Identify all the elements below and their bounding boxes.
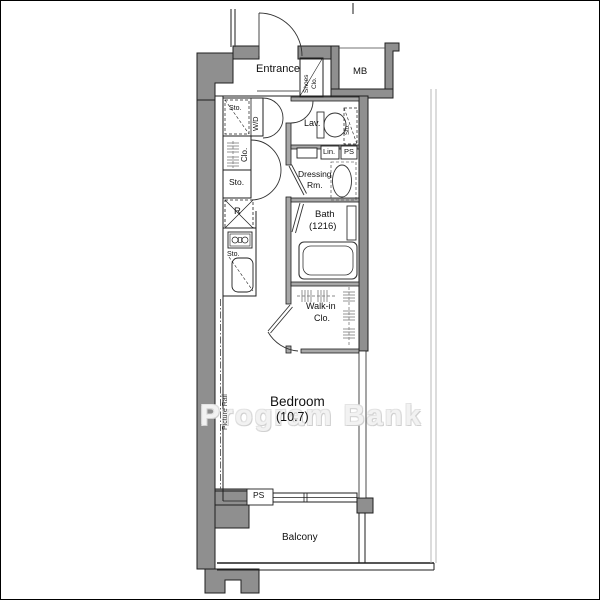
label-washer-dryer: W/D (252, 116, 260, 131)
fixtures (299, 112, 357, 279)
kitchen (223, 228, 256, 296)
closet-hanger-icon (227, 141, 239, 168)
floor-plan-canvas: Program Bank Entrance Shoes Clo. MB Sto.… (0, 0, 600, 600)
label-laundry-storage: Sto. (229, 105, 241, 112)
room-label-closet: Clo. (241, 148, 249, 162)
wall-lav-top (291, 97, 359, 101)
washbasin-counter (331, 162, 356, 200)
room-label-walkin-2: Clo. (314, 314, 330, 323)
label-picture-rail: Picture Rail (222, 394, 229, 430)
wall-hall-seg2 (286, 197, 291, 304)
wall-top-left-block (197, 53, 233, 101)
bathtub-icon (299, 242, 357, 279)
room-label-dressing-1: Dressing (298, 170, 332, 179)
wall-right-bottom-block (357, 498, 373, 513)
bath-door-leaf (292, 203, 304, 233)
room-label-bedroom-2: (10.7) (276, 411, 309, 424)
room-label-meter-box: MB (353, 67, 367, 77)
room-label-entrance: Entrance (256, 64, 300, 76)
wall-bottom-window-side (215, 491, 249, 505)
stove-icon (228, 232, 252, 248)
room-label-bath-1: Bath (315, 210, 335, 220)
wall-bath-wic (291, 282, 359, 286)
wic-hanger-right-icon (343, 287, 355, 345)
washbasin-icon (333, 165, 352, 197)
room-label-lavatory: Lav. (304, 119, 320, 128)
wall-wic-bottom (301, 349, 359, 353)
bath-counter (347, 206, 356, 240)
label-pipe-space-upper: PS (344, 148, 354, 156)
room-label-balcony: Balcony (282, 533, 318, 544)
room-label-bath-2: (1216) (309, 222, 336, 232)
balcony-structure (217, 513, 434, 570)
laundry-double-door-arcs (263, 98, 283, 138)
room-label-shoes-closet-2: Clo. (312, 77, 319, 89)
wall-mb-right (385, 43, 399, 96)
lav-step-box (297, 148, 317, 158)
wall-top-b (298, 46, 335, 59)
entrance-door-arc (259, 13, 302, 56)
floorplan-drawing (1, 1, 600, 600)
label-refrigerator-space: R (234, 207, 241, 217)
room-label-walkin-1: Walk-in (306, 302, 336, 311)
room-label-storage-left: Sto. (229, 178, 244, 187)
toilet-icon (324, 113, 346, 137)
room-label-dressing-2: Rm. (307, 181, 323, 190)
wall-hall-seg1 (286, 123, 291, 165)
survey-ticks (231, 3, 385, 48)
outer-walls (197, 43, 399, 593)
closet-double-door-arcs (251, 140, 281, 200)
wic-door-arc (268, 305, 298, 351)
label-kitchen-storage: Sto. (227, 251, 239, 258)
wall-right (359, 96, 368, 351)
room-label-shoes-closet-1: Shoes (304, 75, 311, 93)
label-lav-corner-storage: Sto. (345, 124, 351, 135)
wall-foot (205, 569, 259, 593)
label-linen: Lin. (323, 148, 335, 156)
neighbor-boundary-lines (431, 89, 436, 563)
label-pipe-space-lower: PS (253, 491, 264, 500)
room-label-bedroom-1: Bedroom (270, 395, 325, 409)
wall-top-a (233, 46, 259, 59)
wall-left (197, 100, 215, 569)
